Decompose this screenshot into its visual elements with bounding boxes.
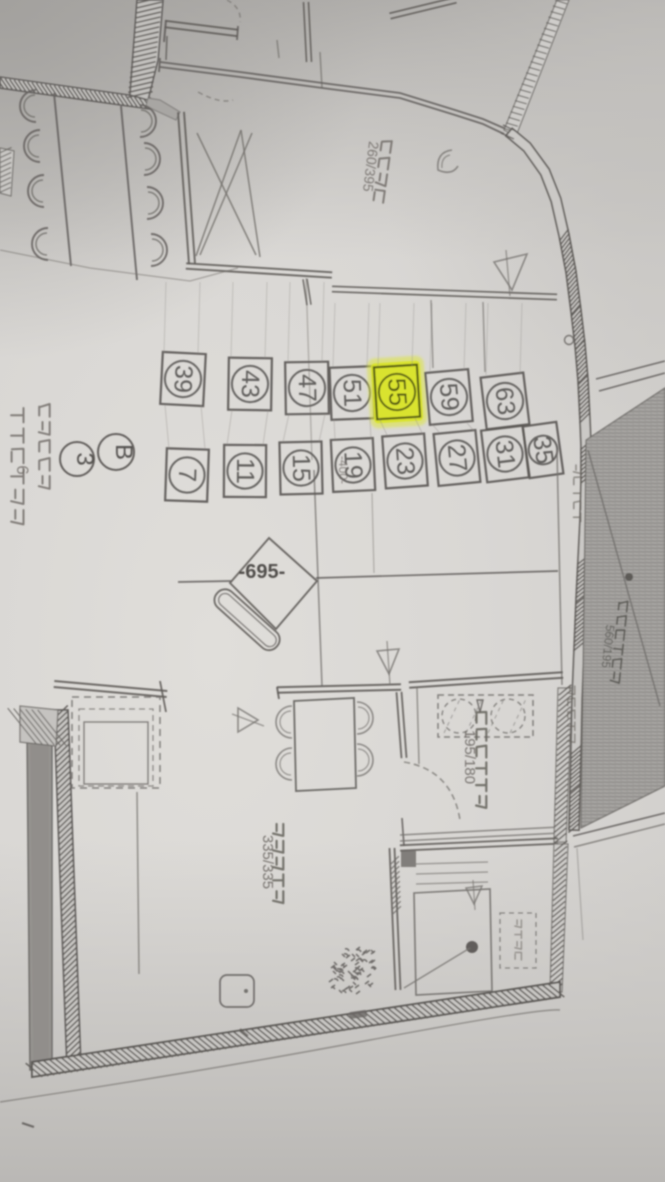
svg-text:335/335: 335/335 bbox=[259, 835, 276, 889]
svg-text:11: 11 bbox=[231, 458, 259, 484]
svg-text:35: 35 bbox=[527, 434, 559, 465]
svg-text:51: 51 bbox=[337, 379, 366, 408]
svg-text:39: 39 bbox=[168, 364, 197, 393]
svg-text:195/180: 195/180 bbox=[461, 730, 478, 784]
svg-text:27: 27 bbox=[442, 443, 473, 473]
svg-text:6: 6 bbox=[13, 465, 32, 474]
svg-text:B: B bbox=[110, 444, 137, 460]
svg-text:23: 23 bbox=[390, 446, 420, 476]
svg-text:-400-: -400- bbox=[336, 456, 350, 484]
svg-text:3: 3 bbox=[71, 452, 98, 465]
svg-text:43: 43 bbox=[236, 370, 264, 398]
svg-text:7: 7 bbox=[173, 468, 201, 483]
svg-text:15: 15 bbox=[287, 454, 316, 482]
svg-text:55: 55 bbox=[382, 377, 412, 407]
svg-text:-695-: -695- bbox=[239, 561, 286, 583]
svg-text:63: 63 bbox=[489, 386, 520, 417]
svg-text:47: 47 bbox=[293, 374, 321, 402]
svg-text:31: 31 bbox=[489, 439, 520, 470]
svg-text:59: 59 bbox=[434, 382, 464, 412]
